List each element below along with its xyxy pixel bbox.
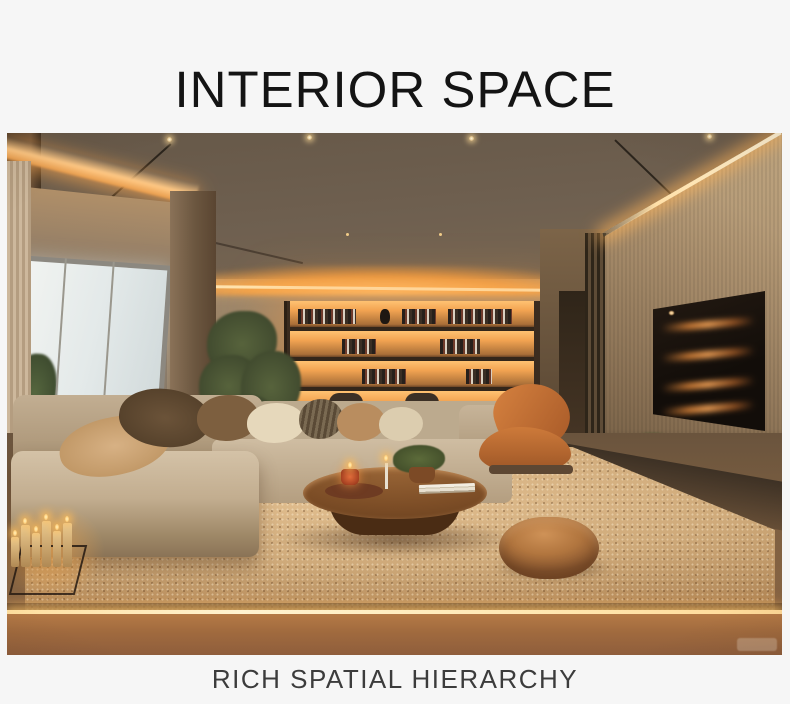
candle (32, 533, 40, 567)
spotlight-icon (707, 134, 712, 139)
leather-pouf (499, 517, 599, 579)
tv-reflection (661, 317, 755, 332)
candle-flame (23, 518, 27, 524)
spotlight-icon (469, 136, 474, 141)
candle (11, 537, 19, 567)
candle (42, 521, 51, 567)
plant-pot (409, 467, 435, 483)
shelf-row (290, 301, 534, 331)
spotlight-icon (167, 137, 172, 142)
candle (53, 531, 61, 567)
books (298, 309, 356, 324)
lounge-chair-base (489, 465, 573, 474)
candle-flame (55, 524, 59, 530)
books (440, 339, 480, 354)
page: INTERIOR SPACE (0, 0, 790, 704)
interior-photo (7, 133, 782, 655)
books (342, 339, 376, 354)
title-band: INTERIOR SPACE (0, 0, 790, 133)
watermark-badge (737, 638, 777, 651)
tv-reflection (661, 347, 755, 362)
candle-flame (348, 462, 352, 468)
books (466, 369, 492, 384)
candle-cup (341, 469, 359, 485)
tv-standby-light (669, 311, 674, 315)
photo-caption: RICH SPATIAL HIERARCHY (212, 664, 578, 695)
vase (380, 309, 390, 324)
candle-flame (13, 530, 17, 536)
table-tray (325, 483, 383, 499)
candle-cluster (11, 513, 83, 567)
recessed-light-dot (439, 233, 442, 236)
books (448, 309, 512, 324)
shelf-row (290, 361, 534, 391)
shelf-row (290, 331, 534, 361)
caption-band: RICH SPATIAL HIERARCHY (0, 655, 790, 704)
books (402, 309, 436, 324)
taper-candle (385, 463, 388, 489)
tv-screen (653, 291, 765, 431)
recessed-light-dot (346, 233, 349, 236)
spotlight-icon (307, 135, 312, 140)
candle-flame (44, 514, 48, 520)
candle-flame (65, 516, 69, 522)
tv-reflection (661, 401, 755, 416)
candle (21, 525, 30, 567)
tv-reflection (661, 377, 755, 392)
candle (63, 523, 72, 567)
page-title: INTERIOR SPACE (175, 64, 616, 115)
polished-floor (7, 614, 782, 655)
candle-flame (34, 526, 38, 532)
books (362, 369, 406, 384)
candle-flame (384, 455, 388, 461)
